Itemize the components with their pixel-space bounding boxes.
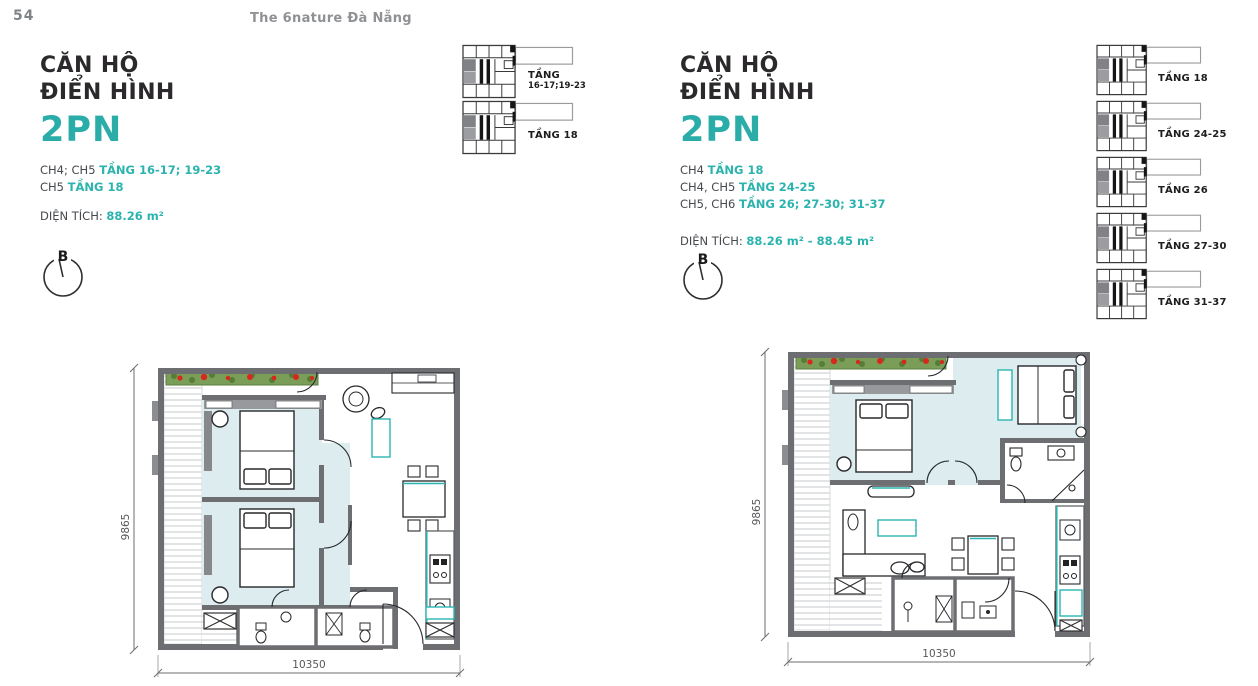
keyplan-diagram-icon [462, 100, 574, 155]
unit-floor-line: CH5, CH6 TẦNG 26; 27-30; 31-37 [680, 196, 980, 213]
section-title: CĂN HỘ ĐIỂN HÌNH [680, 52, 980, 106]
bathrooms [893, 578, 1013, 632]
floor-range: TẦNG 26; 27-30; 31-37 [739, 197, 886, 211]
floor-range: TẦNG 24-25 [739, 180, 816, 194]
unit-codes: CH4 [680, 163, 708, 177]
compass-icon: B [676, 247, 730, 305]
keyplan-label: TẦNG 27-30 [1158, 241, 1227, 252]
keyplan-diagram-icon [1096, 268, 1202, 320]
area-value: 88.26 m² [106, 209, 163, 223]
title-line1: CĂN HỘ [40, 52, 340, 79]
unit-codes: CH4; CH5 [40, 163, 99, 177]
page-number: 54 [13, 8, 34, 24]
unit-floor-list: CH4 TẦNG 18 CH4, CH5 TẦNG 24-25 CH5, CH6… [680, 162, 980, 213]
unit-codes: CH5 [40, 180, 68, 194]
left-keyplans: TẦNG 16-17;19-23 TẦNG 18 [462, 44, 642, 156]
keyplan-item: TẦNG 18 [462, 100, 642, 156]
keyplan-diagram-icon [1096, 212, 1202, 264]
unit-floor-list: CH4; CH5 TẦNG 16-17; 19-23 CH5 TẦNG 18 [40, 162, 340, 196]
keyplan-label-line1: TẦNG 18 [528, 130, 578, 141]
area-line: DIỆN TÍCH: 88.26 m² [40, 209, 340, 223]
unit-floor-line: CH4 TẦNG 18 [680, 162, 980, 179]
right-section-info: CĂN HỘ ĐIỂN HÌNH 2PN CH4 TẦNG 18 CH4, CH… [680, 52, 980, 248]
keyplan-item: TẦNG 16-17;19-23 [462, 44, 642, 100]
compass-north-label: B [698, 252, 709, 268]
keyplan-diagram-icon [1096, 44, 1202, 96]
floorplan-left: 9865 10350 [120, 355, 465, 686]
keyplan-label: TẦNG 18 [1158, 73, 1208, 84]
width-dimension-label: 10350 [292, 659, 325, 671]
area-label: DIỆN TÍCH: [680, 234, 746, 248]
unit-floor-line: CH4, CH5 TẦNG 24-25 [680, 179, 980, 196]
section-title: CĂN HỘ ĐIỂN HÌNH [40, 52, 340, 106]
area-line: DIỆN TÍCH: 88.26 m² - 88.45 m² [680, 234, 980, 248]
brand-header: The 6nature Đà Nẵng [250, 11, 412, 26]
left-section-info: CĂN HỘ ĐIỂN HÌNH 2PN CH4; CH5 TẦNG 16-17… [40, 52, 340, 223]
title-line1: CĂN HỘ [680, 52, 980, 79]
unit-floor-line: CH4; CH5 TẦNG 16-17; 19-23 [40, 162, 340, 179]
keyplan-label-line1: TẦNG [528, 70, 586, 81]
compass-north-label: B [58, 249, 69, 265]
area-label: DIỆN TÍCH: [40, 209, 106, 223]
keyplan-item: TẦNG 26 [1096, 156, 1258, 212]
floor-range: TẦNG 18 [708, 163, 764, 177]
floor-range: TẦNG 18 [68, 180, 124, 194]
width-dimension-label: 10350 [922, 648, 955, 660]
keyplan-label: TẦNG 31-37 [1158, 297, 1227, 308]
bathrooms [238, 607, 394, 647]
title-line2: ĐIỂN HÌNH [680, 79, 980, 106]
keyplan-diagram-icon [1096, 156, 1202, 208]
unit-codes: CH4, CH5 [680, 180, 739, 194]
area-value: 88.26 m² - 88.45 m² [746, 234, 874, 248]
title-line2: ĐIỂN HÌNH [40, 79, 340, 106]
floorplan-right: 9865 10350 [750, 340, 1095, 686]
keyplan-label-line2: 16-17;19-23 [528, 81, 586, 92]
keyplan-item: TẦNG 18 [1096, 44, 1258, 100]
kitchen [1056, 506, 1084, 626]
keyplan-label: TẦNG 18 [528, 130, 578, 141]
unit-type: 2PN [40, 111, 340, 149]
unit-codes: CH5, CH6 [680, 197, 739, 211]
keyplan-item: TẦNG 24-25 [1096, 100, 1258, 156]
height-dimension-label: 9865 [751, 499, 763, 526]
right-keyplans: TẦNG 18 TẦNG 24-25 TẦNG 26 TẦNG 27-30 TẦ… [1096, 44, 1258, 324]
keyplan-diagram-icon [1096, 100, 1202, 152]
keyplan-item: TẦNG 31-37 [1096, 268, 1258, 324]
unit-type: 2PN [680, 111, 980, 149]
keyplan-label: TẦNG 24-25 [1158, 129, 1227, 140]
compass-icon: B [36, 244, 90, 302]
keyplan-label: TẦNG 26 [1158, 185, 1208, 196]
unit-floor-line: CH5 TẦNG 18 [40, 179, 340, 196]
floor-range: TẦNG 16-17; 19-23 [99, 163, 221, 177]
keyplan-label: TẦNG 16-17;19-23 [528, 70, 586, 92]
height-dimension-label: 9865 [120, 514, 132, 541]
keyplan-item: TẦNG 27-30 [1096, 212, 1258, 268]
